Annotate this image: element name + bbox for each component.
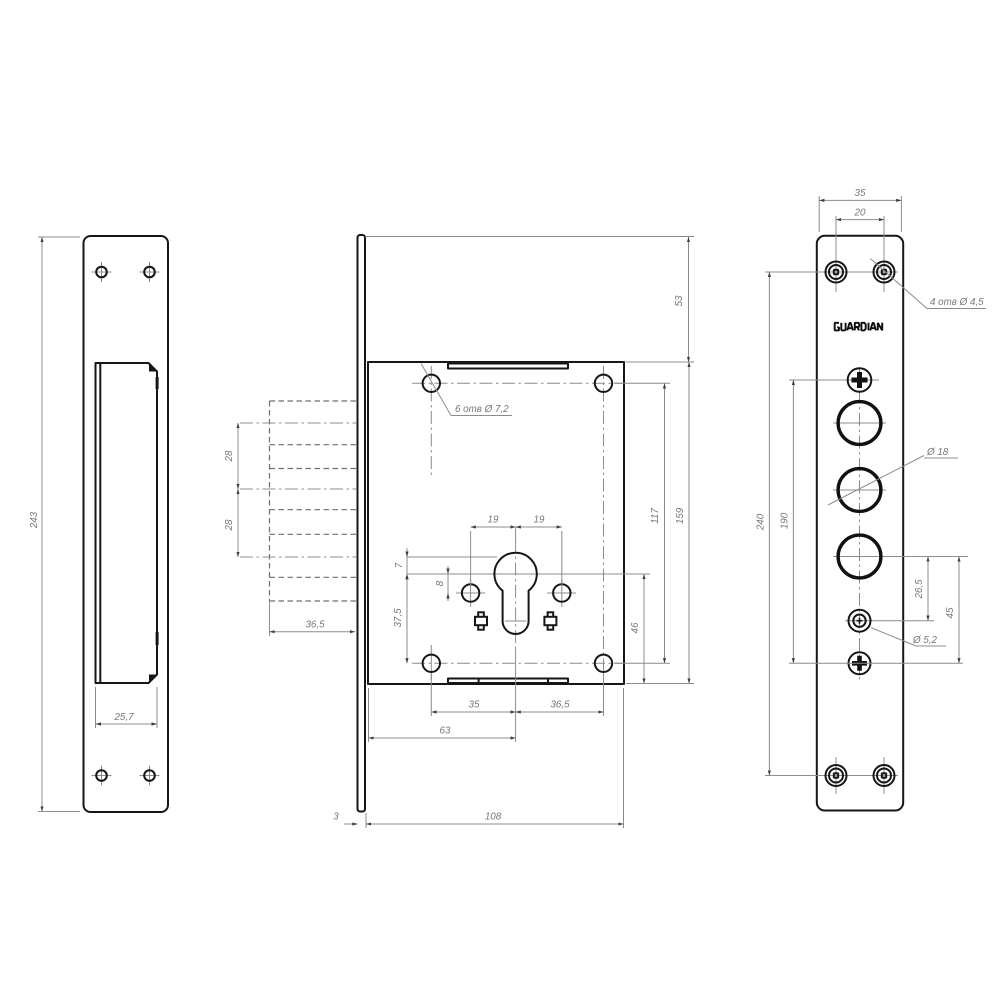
svg-text:19: 19	[488, 515, 499, 526]
svg-text:4 отв Ø 4,5: 4 отв Ø 4,5	[930, 297, 984, 308]
svg-text:46: 46	[630, 622, 641, 633]
svg-text:190: 190	[780, 512, 791, 529]
svg-text:3: 3	[333, 812, 339, 823]
svg-text:53: 53	[674, 295, 685, 306]
svg-text:6 отв Ø 7,2: 6 отв Ø 7,2	[455, 404, 509, 415]
svg-text:8: 8	[435, 580, 446, 586]
svg-text:Ø 5,2: Ø 5,2	[912, 635, 938, 646]
svg-text:Ø 18: Ø 18	[926, 447, 949, 458]
svg-text:35: 35	[469, 700, 480, 711]
svg-text:36,5: 36,5	[550, 700, 570, 711]
svg-text:20: 20	[854, 208, 866, 219]
svg-text:63: 63	[440, 726, 451, 737]
svg-text:37,5: 37,5	[393, 608, 404, 628]
svg-text:108: 108	[485, 812, 502, 823]
svg-text:45: 45	[945, 607, 956, 618]
svg-text:240: 240	[756, 513, 767, 531]
svg-text:28: 28	[224, 519, 235, 531]
svg-text:19: 19	[534, 515, 545, 526]
svg-text:159: 159	[675, 507, 686, 524]
svg-text:35: 35	[855, 188, 866, 199]
svg-text:28: 28	[224, 450, 235, 462]
svg-text:25,7: 25,7	[113, 712, 134, 723]
svg-text:243: 243	[29, 511, 40, 529]
svg-text:7: 7	[394, 562, 405, 568]
svg-text:117: 117	[650, 508, 661, 524]
svg-text:36,5: 36,5	[305, 620, 325, 631]
svg-text:26,5: 26,5	[914, 579, 925, 600]
